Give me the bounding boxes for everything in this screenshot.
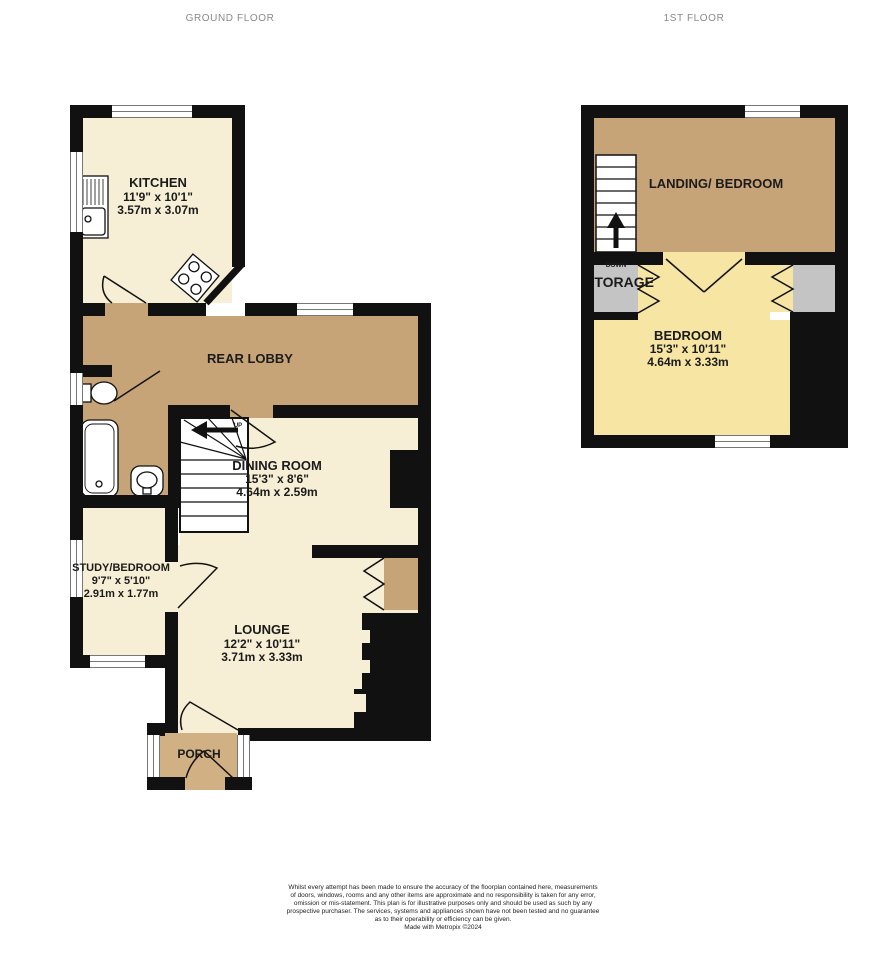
wall-segment [165,667,178,733]
disclaimer-credit: Made with Metropix ©2024 [0,924,886,932]
wall-segment [225,777,252,790]
dining-chimney-breast [390,450,418,508]
toilet [82,382,117,404]
disclaimer-line: of doors, windows, rooms and any other i… [0,892,886,900]
porch-label: PORCH [177,748,220,761]
first-floor-title: 1ST FLOOR [664,13,725,24]
wall-segment [165,508,178,562]
floorplan-canvas: GROUND FLOOR 1ST FLOOR KITCHEN 11'9" x 1… [0,0,886,957]
wall-segment [232,105,245,267]
chimney-alcove [362,630,370,643]
window [237,735,250,777]
first-floor-void [790,318,836,435]
study-door [178,563,217,608]
kitchen-label: KITCHEN [129,176,187,190]
window [147,735,160,777]
airing-cupboard-label-clip: AIRING CUPBOARD [794,281,835,290]
ground-stairs [180,418,248,532]
stairs-up-label: UP [234,423,242,430]
wall-segment [418,303,431,741]
study-bedroom-label: STUDY/BEDROOM [72,562,170,574]
lounge-chimney-breast [362,613,418,689]
wall-segment [835,105,848,448]
plan-linework [0,0,886,957]
window [112,105,192,118]
wall-segment [312,545,418,558]
disclaimer-line: Whilst every attempt has been made to en… [0,884,886,892]
storage-label-clip: STORAGE [594,274,654,291]
chimney-alcove [354,694,366,712]
kitchen-door [103,276,146,303]
wall-segment [273,405,418,418]
wall-segment [168,405,180,507]
window [70,373,83,405]
disclaimer-line: omission or mis-statement. This plan is … [0,900,886,908]
wall-segment [70,495,180,508]
bathroom-sink [131,466,163,496]
window [745,105,800,118]
kitchen-sink [79,176,108,238]
dining-room-dims-metric: 4.64m x 2.59m [236,486,317,499]
study-bedroom-dims-imperial: 9'7" x 5'10" [92,575,150,587]
lounge-porch-door [181,702,238,730]
bedroom-door-left [666,259,704,292]
window [715,435,770,448]
lounge-dims-metric: 3.71m x 3.33m [221,651,302,664]
wall-segment [148,303,206,316]
first-stairs [596,155,636,252]
bedroom-dims-metric: 4.64m x 3.33m [647,356,728,369]
storage-label: STORAGE [594,274,654,290]
disclaimer-line: prospective purchaser. The services, sys… [0,908,886,916]
bedroom-door-right [704,259,742,292]
window [90,655,145,668]
window [70,152,83,232]
bathroom-door [114,371,160,401]
landing-bedroom-label: LANDING/ BEDROOM [649,177,783,191]
disclaimer-line: as to their operability or efficiency ca… [0,916,886,924]
rear-lobby-label: REAR LOBBY [207,352,293,366]
wall-segment [160,777,185,790]
airing-cupboard-doors [772,265,793,312]
wall-segment [581,105,594,448]
study-bedroom-dims-metric: 2.91m x 1.77m [84,588,159,600]
chimney-alcove [362,660,370,673]
wall-segment [70,303,105,316]
dining-cupboard-doors [364,558,384,610]
wall-segment [594,312,638,320]
wall-segment [745,252,848,265]
window [297,303,353,316]
disclaimer-text: Whilst every attempt has been made to en… [0,884,886,932]
stairs-down-label: DOWN [606,262,627,269]
kitchen-dims-metric: 3.57m x 3.07m [117,204,198,217]
ground-floor-title: GROUND FLOOR [186,13,275,24]
lounge-label: LOUNGE [234,623,290,637]
wall-segment [581,105,848,118]
bathtub [81,420,118,497]
